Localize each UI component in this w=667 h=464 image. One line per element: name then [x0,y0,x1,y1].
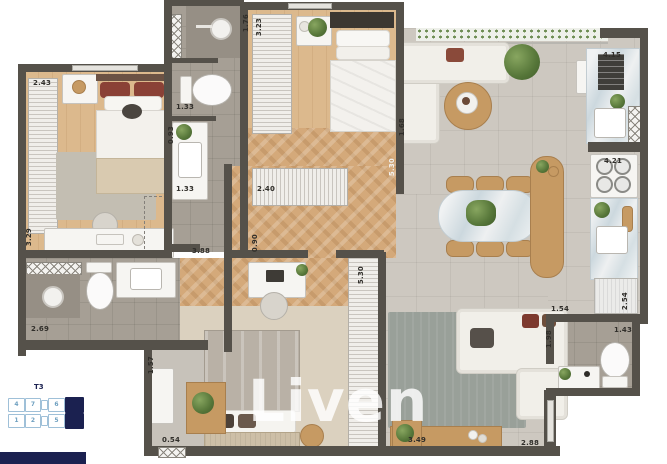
island-bowl [548,166,559,177]
bedroom2-plant [308,18,327,37]
bed-headboard [96,74,168,81]
keyplan-unit [41,416,48,426]
wall [336,250,384,258]
wall [18,64,26,356]
dim-label: 0.93 [168,126,175,144]
shower1-head [210,18,232,40]
bedroom1-window [72,65,138,71]
desk-item [96,234,124,245]
toilet2-bowl [86,272,114,310]
dim-label: 3.23 [256,18,263,36]
wall [224,164,232,352]
kitchen-sink-2 [596,226,628,254]
dim-label: 2.43 [33,80,51,87]
wall [168,116,216,121]
dim-label: 1.33 [176,186,194,193]
entry-cabinet-plant [192,392,214,414]
toilet3-bowl [600,342,630,378]
stove-burner [614,176,631,193]
liven-watermark: Liven [248,372,428,430]
dim-label: 1.68 [399,118,406,136]
dim-label: 2.40 [257,186,275,193]
keyplan-unit [41,400,48,410]
sofa-pillow [522,314,539,328]
vanity1-plant [176,124,192,140]
living-plant [504,44,540,80]
wall [240,4,248,252]
wall [18,250,172,258]
bedroom1-lamp [72,80,86,94]
bed-blanket [96,158,170,194]
dim-label: 0.90 [252,234,259,252]
dim-label: 0.54 [162,437,180,444]
keyplan-unit: 5 [48,414,65,428]
kitchen-island [530,156,564,278]
dim-label: 1.98 [546,330,553,348]
kitchen-window-shaft [598,54,624,90]
dim-label: 5.30 [389,158,396,176]
bedroom1-bed [96,74,168,192]
wall [164,0,244,6]
bedroom2-bed [330,12,394,130]
floor-plan: 2.43 3.29 2.69 1.33 0.93 1.33 3.88 1.76 … [0,0,667,464]
keyplan-unit-highlighted [65,397,84,413]
dining-chair [446,240,474,257]
laptop [266,270,284,282]
counter-plant [594,202,610,218]
wall [588,142,642,152]
living-balcony-door [547,400,554,442]
dining-chair [476,240,504,257]
wall [546,388,640,396]
entry-door-leaf [150,368,174,424]
keyplan-unit: 1 [8,414,25,428]
wall [18,340,208,350]
wall [632,314,640,396]
dim-label: 1.43 [614,327,632,334]
keyplan-title: T3 [34,384,44,391]
toilet3-tank [602,376,628,388]
bed-pillow [336,46,390,60]
vanity2-sink [130,268,162,290]
cat [122,104,142,119]
bed-headboard [330,12,394,28]
toilet1-bowl [192,74,232,106]
bed-duvet [330,60,396,132]
master-desk-chair [260,292,288,320]
dim-label: 4.15 [603,52,621,59]
dim-label: 5.30 [358,266,365,284]
sofa-pillow [446,48,464,62]
dim-label: 2.54 [622,292,629,310]
keyplan-unit: 6 [48,398,65,412]
balcony-planter [416,28,608,41]
keyplan-unit: 2 [25,414,41,428]
coffee-table-decor [462,97,470,105]
shower1-arm [196,25,212,28]
lavabo-plant [559,368,571,380]
dim-label: 1.33 [176,104,194,111]
toilet1-tank [180,76,192,104]
dim-label: 2.69 [31,326,49,333]
wall [168,58,218,63]
keyplan-unit-highlighted [65,413,84,429]
wall [396,158,404,194]
shower2-head [42,286,64,308]
console-decor [468,430,478,440]
desk-plant [296,264,308,276]
bedroom1-wardrobe [28,78,58,234]
footer-accent-bar [0,452,86,464]
keyplan-unit: 4 [8,398,25,412]
bed-pillow [336,30,390,47]
wall [230,250,308,258]
entry-threshold-hatch [158,447,186,458]
dim-label: 4.21 [604,158,622,165]
keyplan: T3 4 7 6 1 2 5 [4,380,96,436]
wall [640,28,648,324]
stove-burner [596,176,613,193]
fridge [594,278,638,314]
dining-centerpiece [466,200,496,226]
keyplan-unit: 7 [25,398,41,412]
dim-label: 3.88 [192,248,210,255]
dim-label: 1.76 [243,14,250,32]
sofa-ottoman [470,328,494,348]
dim-label: 1.54 [551,306,569,313]
dim-label: 1.57 [148,356,155,374]
console-decor [478,434,487,443]
bedroom2-window [288,3,332,9]
dim-label: 3.49 [408,437,426,444]
desk-item [132,234,144,246]
kitchen-sink [594,108,626,138]
vanity1-sink [178,142,202,178]
lavabo-faucet [584,371,590,377]
wall [144,446,560,456]
dim-label: 2.88 [521,440,539,447]
dim-label: 3.29 [26,228,33,246]
kitchen-bowl-plant [610,94,625,109]
